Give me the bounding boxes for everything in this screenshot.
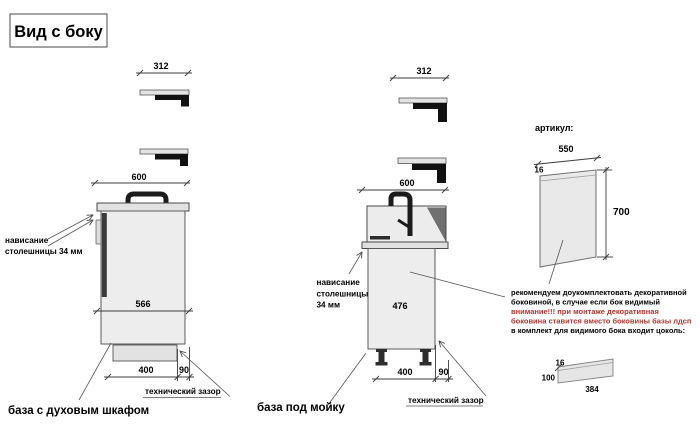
edge-angle — [155, 95, 189, 107]
countertop-profile-piece — [140, 90, 189, 107]
middle-unit-sink-base: 312 600 476 — [257, 66, 505, 414]
left-unit-oven-base: 312 600 566 — [5, 61, 230, 417]
title-box: Вид с боку — [10, 14, 107, 47]
oven-door-edge — [102, 213, 107, 297]
dim-value: 100 — [542, 374, 556, 383]
cabinet-leg — [420, 349, 432, 366]
dim-value: 312 — [416, 66, 431, 76]
sink-drain — [370, 236, 390, 240]
dim-value: 90 — [179, 365, 189, 375]
cabinet-body — [101, 211, 185, 344]
plinth-piece — [558, 359, 613, 383]
dim-panel-width: 550 — [534, 144, 601, 167]
unit-label: база под мойку — [257, 402, 345, 414]
note-line-warning: боковина ставится вместо боковины базы л… — [511, 317, 691, 326]
article-heading: артикул: — [535, 123, 573, 133]
side-panel-section: артикул: 550 16 700 рекомендуем доукомпл… — [511, 123, 691, 394]
dim-value: 400 — [138, 365, 153, 375]
countertop — [97, 203, 189, 211]
overhang-label: нависание — [317, 278, 361, 287]
dim-countertop-middle: 600 — [357, 178, 449, 193]
dim-value: 400 — [397, 367, 412, 377]
note-line: в комплект для видимого бока входит цоко… — [511, 326, 685, 335]
edge-angle — [155, 154, 188, 166]
cabinet-leg — [376, 349, 388, 366]
dim-value: 90 — [438, 367, 448, 377]
tech-gap-label: технический зазор — [145, 387, 221, 396]
note-line: рекомендуем доукомплектовать декоративно… — [511, 288, 687, 297]
oven-handle — [96, 220, 101, 244]
leader-line — [79, 343, 111, 400]
countertop — [362, 242, 448, 249]
tech-gap-label: технический зазор — [408, 396, 484, 405]
overhang-callout-left: нависание столешницы 34 мм — [5, 215, 93, 256]
dim-value: 600 — [131, 172, 146, 182]
dim-panel-height: 700 — [597, 167, 630, 260]
edge-angle — [413, 103, 447, 122]
dim-value: 16 — [535, 166, 544, 175]
dim-top-piece-left: 312 — [136, 61, 192, 76]
dim-value: 16 — [556, 359, 565, 368]
dim-value: 600 — [399, 178, 414, 188]
dim-top-piece-middle: 312 — [390, 66, 449, 81]
plinth — [113, 345, 177, 361]
overhang-callout-middle: нависание столешницы 34 мм — [317, 252, 369, 310]
countertop-profile-piece — [399, 98, 447, 122]
overhang-label: столешницы 34 мм — [5, 247, 83, 256]
dim-value: 384 — [585, 385, 599, 394]
cabinet-body — [368, 249, 435, 350]
note-line-warning: внимание!!! при монтаже декоративная — [511, 307, 659, 316]
dim-value: 700 — [613, 207, 630, 218]
edge-angle — [412, 164, 446, 183]
dim-countertop-left: 600 — [91, 172, 190, 186]
dim-value: 312 — [153, 61, 168, 71]
unit-label: база с духовым шкафом — [8, 405, 149, 417]
leader-line — [328, 353, 366, 405]
overhang-label: нависание — [5, 236, 49, 245]
dim-value: 476 — [392, 301, 407, 311]
dim-value: 550 — [558, 144, 573, 154]
plinth-piece-section: 16 100 384 — [542, 359, 613, 395]
decorative-side-panel — [540, 170, 596, 267]
notes: рекомендуем доукомплектовать декоративно… — [511, 288, 691, 335]
dim-value: 566 — [135, 299, 150, 309]
note-line: боковиной, в случае если бок видимый — [511, 298, 660, 307]
technical-drawing: Вид с боку 312 600 — [0, 0, 700, 428]
overhang-label: 34 мм — [317, 301, 341, 310]
overhang-label: столешницы — [317, 290, 369, 299]
page-title: Вид с боку — [14, 23, 103, 41]
drawing-page: Вид с боку 312 600 — [0, 0, 700, 428]
countertop-profile-piece — [140, 149, 188, 166]
